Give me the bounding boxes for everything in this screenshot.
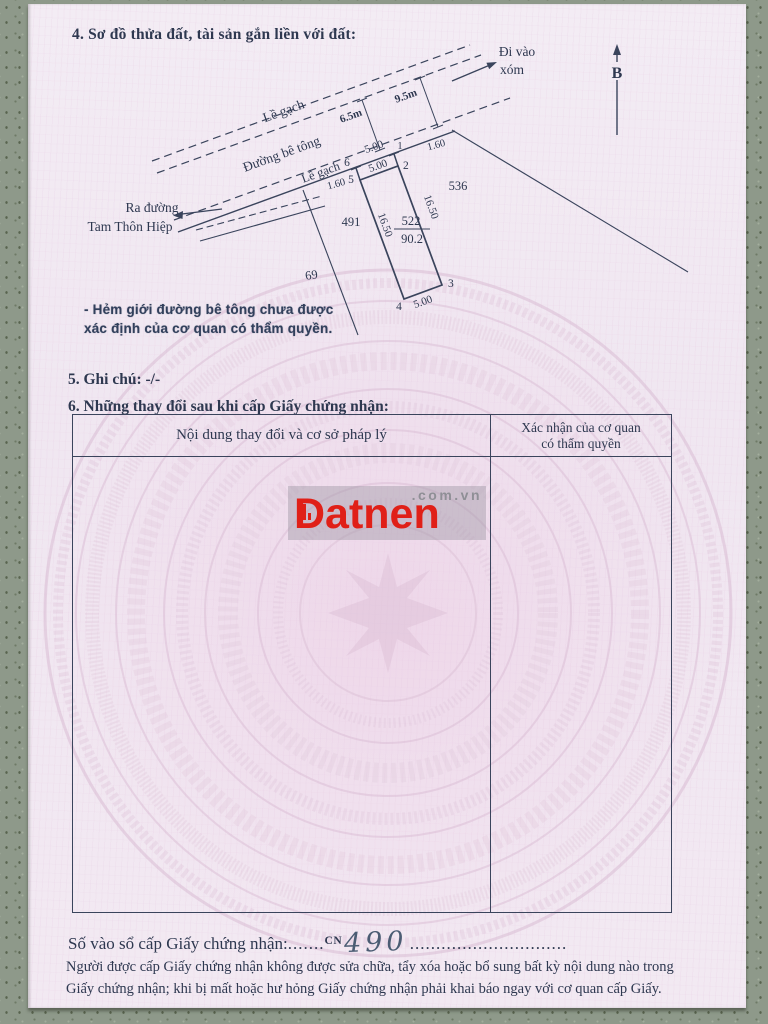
parcel-number: 522 [402,214,421,228]
changes-table-col2-header: Xác nhận của cơ quan có thẩm quyền [491,415,671,456]
neighbor-69: 69 [304,267,318,283]
disclaimer-line2: Giấy chứng nhận; khi bị mất hoặc hư hỏng… [66,978,726,1000]
parcel-area: 90.2 [401,232,423,246]
datnen-logo-brand: Datnen [294,490,440,538]
alley-note-line1: - Hẻm giới đường bê tông chưa được [84,300,333,319]
serial-row: Số vào sổ cấp Giấy chứng nhận:.......CN4… [68,925,567,956]
point-5: 5 [348,174,354,186]
dim-inner-top: 5.00 [367,157,390,175]
parcel-offset-left [356,168,360,180]
alley-note-line2: xác định của cơ quan có thẩm quyền. [84,319,333,338]
alley-note: - Hẻm giới đường bê tông chưa được xác đ… [84,300,333,338]
serial-dots-right: .............................. [410,934,568,953]
disclaimer: Người được cấp Giấy chứng nhận không đượ… [66,956,726,1000]
dim-left: 16.50 [375,211,395,239]
arrow-into-hamlet [452,65,490,81]
serial-code: CN [325,935,343,947]
dim-bottom: 5.00 [412,293,435,311]
neighbor-491: 491 [342,215,361,229]
dim-top: 5.00 [363,138,386,156]
disclaimer-line1: Người được cấp Giấy chứng nhận không đượ… [66,956,726,978]
dim-right: 16.50 [421,193,441,221]
changes-table-col1-header: Nội dung thay đổi và cơ sở pháp lý [73,415,491,456]
direction-label-1: Đi vào [499,44,536,59]
serial-number-handwritten: 490 [344,926,409,959]
datnen-logo: .com.vn Datnen [288,486,486,540]
dim-offset-left: 1.60 [326,177,347,192]
section5-title: 5. Ghi chú: -/- [68,371,160,389]
road-lane-top-dashed [157,55,481,173]
boundary-536 [452,130,688,272]
exit-label-1: Ra đường [125,200,178,215]
parcel-offset-right [394,154,398,166]
dim-road-width: 6.5m [338,107,364,126]
point-4: 4 [396,301,402,313]
neighbor-536: 536 [449,179,468,193]
sidewalk-top-label: Lề gạch [261,96,307,125]
direction-label-2: xóm [500,62,525,77]
point-1: 1 [398,141,403,152]
dim-line-total [420,78,438,127]
serial-dots-left: ....... [288,934,325,953]
datnen-building-icon [298,500,312,520]
point-3: 3 [448,278,454,290]
serial-label: Số vào sổ cấp Giấy chứng nhận: [68,934,288,953]
point-2: 2 [403,160,409,172]
changes-table-body-right [491,457,671,912]
dim-total-width: 9.5m [393,87,419,106]
exit-label-2: Tam Thôn Hiệp [87,219,172,234]
point-6: 6 [344,157,350,169]
north-label: B [612,65,623,82]
